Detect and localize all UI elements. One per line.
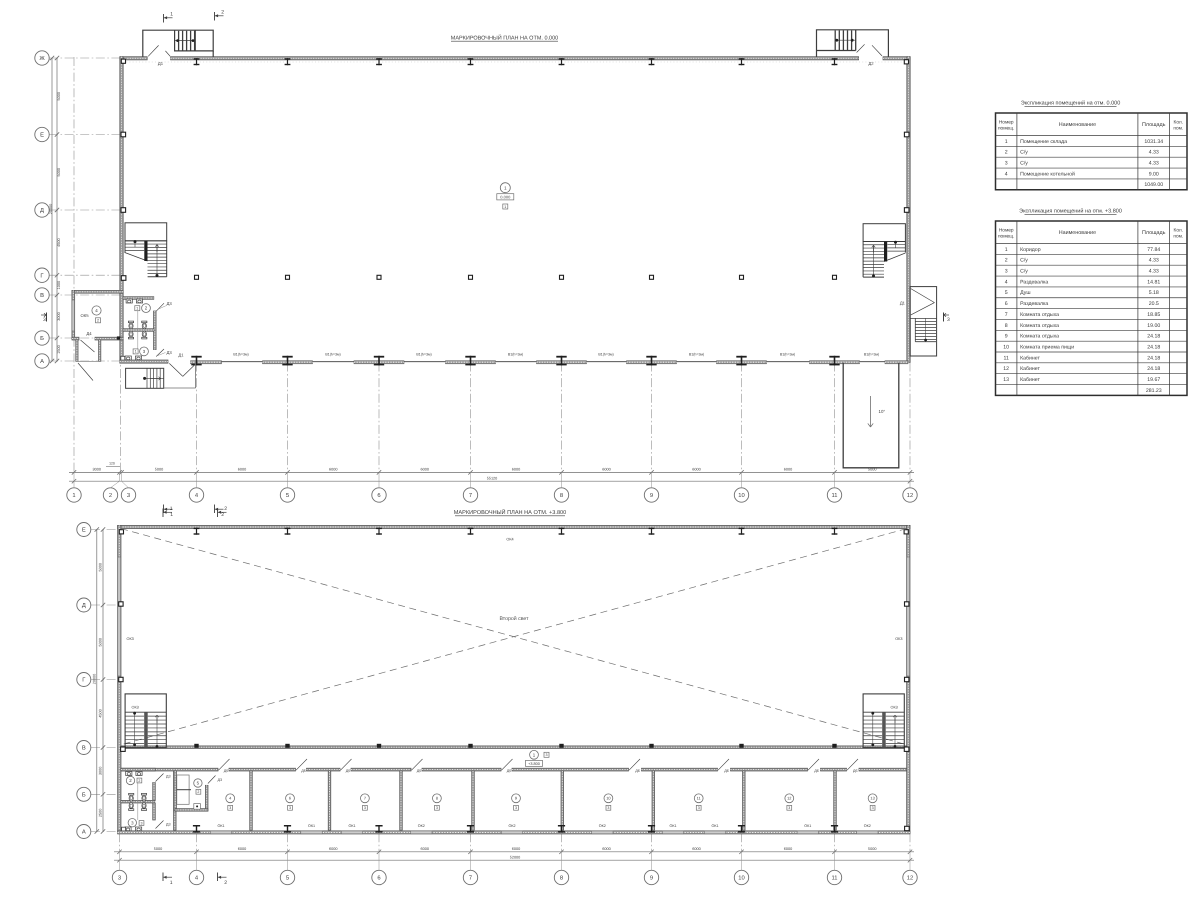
svg-text:Кабинет: Кабинет: [1020, 366, 1040, 372]
svg-text:10: 10: [738, 875, 744, 882]
svg-text:10: 10: [738, 492, 744, 499]
svg-text:9: 9: [515, 796, 517, 801]
svg-text:С/у: С/у: [1020, 161, 1028, 167]
svg-text:С/у: С/у: [1020, 269, 1028, 275]
svg-text:Д6: Д6: [635, 769, 640, 773]
svg-text:МАРКИРОВОЧНЫЙ ПЛАН НА ОТМ. +3.: МАРКИРОВОЧНЫЙ ПЛАН НА ОТМ. +3.800: [454, 508, 567, 516]
svg-text:9: 9: [650, 875, 653, 882]
svg-text:12: 12: [1003, 366, 1009, 372]
svg-text:6000: 6000: [238, 468, 246, 472]
svg-text:11: 11: [697, 796, 701, 801]
svg-text:Площадь: Площадь: [1142, 122, 1166, 128]
svg-text:3: 3: [364, 806, 366, 810]
svg-text:1: 1: [72, 493, 75, 499]
svg-text:1031.34: 1031.34: [1144, 139, 1163, 145]
svg-text:В: В: [40, 293, 44, 299]
svg-text:5000: 5000: [57, 92, 61, 100]
svg-text:1: 1: [170, 506, 173, 512]
svg-text:пом.: пом.: [1173, 126, 1183, 131]
svg-text:6000: 6000: [329, 847, 337, 851]
svg-text:В1(h=3м): В1(h=3м): [598, 352, 613, 356]
svg-text:7: 7: [364, 796, 366, 801]
svg-text:помещ.: помещ.: [998, 126, 1015, 131]
svg-text:В1(h=3м): В1(h=3м): [689, 352, 704, 356]
svg-text:6: 6: [1005, 301, 1008, 307]
svg-text:ОК5: ОК5: [81, 313, 90, 318]
svg-text:5000: 5000: [868, 468, 876, 472]
svg-text:19.67: 19.67: [1147, 377, 1160, 383]
svg-text:3000: 3000: [93, 468, 101, 472]
svg-text:2: 2: [221, 10, 224, 16]
svg-text:Наименование: Наименование: [1059, 122, 1096, 128]
svg-text:Б: Б: [82, 792, 86, 798]
svg-text:8: 8: [1005, 323, 1008, 329]
svg-text:3: 3: [118, 875, 121, 882]
svg-text:Д5: Д5: [224, 769, 229, 773]
svg-text:ОК3: ОК3: [895, 637, 902, 641]
svg-text:2: 2: [224, 880, 227, 886]
svg-text:24.18: 24.18: [1147, 344, 1160, 350]
svg-text:Д3: Д3: [167, 350, 173, 355]
svg-text:5000: 5000: [57, 168, 61, 176]
svg-text:ОК3: ОК3: [891, 705, 898, 709]
svg-text:5: 5: [286, 493, 289, 499]
svg-text:Наименование: Наименование: [1059, 230, 1096, 236]
svg-text:4.33: 4.33: [1149, 269, 1159, 275]
svg-text:1: 1: [1005, 247, 1008, 253]
svg-text:4.33: 4.33: [1149, 150, 1159, 156]
svg-text:4: 4: [1005, 279, 1008, 285]
svg-text:6000: 6000: [784, 847, 792, 851]
svg-text:6000: 6000: [784, 468, 792, 472]
svg-text:Помещение котельной: Помещение котельной: [1020, 171, 1075, 177]
svg-text:6000: 6000: [692, 847, 700, 851]
svg-text:Д6: Д6: [724, 769, 729, 773]
svg-text:5000: 5000: [99, 638, 103, 646]
svg-text:Д5: Д5: [507, 769, 512, 773]
svg-text:Д3: Д3: [166, 775, 171, 779]
svg-text:2500: 2500: [99, 809, 103, 817]
svg-text:С/у: С/у: [1020, 258, 1028, 264]
svg-text:ОК2: ОК2: [508, 824, 515, 828]
svg-text:В1(h=3м): В1(h=3м): [325, 352, 340, 356]
svg-text:4.33: 4.33: [1149, 161, 1159, 167]
svg-text:помещ.: помещ.: [998, 234, 1015, 239]
svg-text:6: 6: [377, 492, 380, 499]
svg-text:10°: 10°: [879, 409, 886, 414]
svg-text:20000: 20000: [49, 204, 53, 215]
svg-text:3: 3: [698, 806, 700, 810]
svg-text:3: 3: [1005, 269, 1008, 275]
svg-text:11: 11: [1004, 355, 1009, 361]
svg-text:В1(h=3м): В1(h=3м): [233, 352, 248, 356]
svg-text:Д3: Д3: [166, 823, 171, 827]
svg-text:Номер: Номер: [999, 119, 1014, 125]
svg-text:52000: 52000: [510, 855, 521, 859]
svg-text:В1(h=3м): В1(h=3м): [780, 352, 795, 356]
svg-text:4: 4: [1005, 171, 1008, 177]
svg-text:3: 3: [607, 806, 609, 810]
svg-text:ОК4: ОК4: [506, 538, 513, 542]
svg-text:В1(h=3м): В1(h=3м): [416, 352, 431, 356]
svg-text:6: 6: [377, 875, 380, 882]
svg-text:2: 2: [1005, 150, 1008, 156]
svg-text:Номер: Номер: [999, 227, 1014, 233]
svg-text:8: 8: [560, 492, 563, 499]
svg-text:Д2: Д2: [868, 61, 874, 66]
svg-text:2: 2: [224, 506, 227, 512]
svg-text:Кабинет: Кабинет: [1020, 355, 1040, 361]
svg-text:Комната отдыха: Комната отдыха: [1020, 323, 1059, 329]
svg-text:13: 13: [1003, 377, 1009, 383]
svg-text:4500: 4500: [99, 709, 103, 717]
svg-text:12: 12: [787, 796, 791, 801]
svg-text:Коридор: Коридор: [1020, 247, 1041, 253]
svg-text:Е: Е: [40, 133, 44, 139]
svg-text:3: 3: [515, 806, 517, 810]
svg-text:Кол.: Кол.: [1174, 119, 1184, 125]
svg-text:13: 13: [870, 796, 874, 801]
svg-text:Б: Б: [40, 336, 44, 342]
svg-text:10: 10: [1003, 344, 1009, 350]
svg-text:Д1: Д1: [178, 353, 184, 358]
svg-text:55120: 55120: [487, 476, 498, 480]
svg-text:19.00: 19.00: [1147, 323, 1160, 329]
svg-text:4.33: 4.33: [1149, 258, 1159, 264]
svg-text:С/у: С/у: [1020, 150, 1028, 156]
svg-text:Раздевалка: Раздевалка: [1020, 301, 1048, 307]
svg-text:ОК1: ОК1: [308, 824, 315, 828]
svg-text:9: 9: [1005, 334, 1008, 340]
svg-text:ОК2: ОК2: [599, 824, 606, 828]
svg-text:ОК1: ОК1: [348, 824, 355, 828]
svg-text:ОК3: ОК3: [132, 705, 139, 709]
svg-text:Душ: Душ: [1020, 290, 1030, 296]
svg-text:Д5: Д5: [346, 769, 351, 773]
svg-text:11: 11: [831, 493, 837, 499]
svg-text:5000: 5000: [868, 847, 876, 851]
svg-text:Е: Е: [82, 528, 86, 534]
svg-text:Кабинет: Кабинет: [1020, 377, 1040, 383]
svg-text:24.18: 24.18: [1147, 334, 1160, 340]
svg-text:3: 3: [872, 806, 874, 810]
svg-text:Д6: Д6: [814, 769, 819, 773]
svg-text:ОК2: ОК2: [418, 824, 425, 828]
svg-text:6000: 6000: [512, 468, 520, 472]
svg-text:МАРКИРОВОЧНЫЙ ПЛАН НА ОТМ. 0.0: МАРКИРОВОЧНЫЙ ПЛАН НА ОТМ. 0.000: [451, 35, 558, 42]
svg-text:В1(h=3м): В1(h=3м): [864, 352, 879, 356]
svg-text:Д3: Д3: [167, 301, 173, 306]
svg-text:5.18: 5.18: [1149, 290, 1159, 296]
svg-text:ОК2: ОК2: [864, 824, 871, 828]
svg-text:Кол.: Кол.: [1174, 227, 1184, 233]
svg-text:Д5: Д5: [301, 769, 306, 773]
svg-text:ОК1: ОК1: [804, 824, 811, 828]
svg-text:1: 1: [136, 306, 138, 310]
svg-text:6000: 6000: [602, 847, 610, 851]
svg-text:пом.: пом.: [1173, 234, 1183, 239]
svg-text:2: 2: [138, 779, 140, 783]
svg-text:6000: 6000: [329, 468, 337, 472]
svg-text:14.81: 14.81: [1147, 279, 1160, 285]
svg-text:1: 1: [170, 880, 173, 886]
svg-text:Д3: Д3: [218, 778, 223, 782]
svg-text:ОК1: ОК1: [669, 824, 676, 828]
svg-text:Ж: Ж: [39, 56, 45, 62]
svg-text:3: 3: [141, 821, 143, 825]
svg-text:Д: Д: [40, 208, 44, 214]
svg-text:9: 9: [650, 492, 653, 499]
svg-text:3: 3: [229, 806, 231, 810]
svg-text:3: 3: [947, 317, 950, 323]
svg-text:6000: 6000: [512, 847, 520, 851]
svg-text:А: А: [40, 359, 44, 365]
svg-text:Комната отдыха: Комната отдыха: [1020, 334, 1059, 340]
svg-text:7: 7: [469, 493, 472, 499]
svg-text:Д5: Д5: [417, 769, 422, 773]
svg-text:2: 2: [109, 492, 112, 499]
svg-text:3: 3: [1005, 161, 1008, 167]
svg-text:1: 1: [504, 205, 506, 209]
svg-text:Комната отдыха: Комната отдыха: [1020, 312, 1059, 318]
svg-text:12: 12: [907, 875, 913, 882]
svg-text:18.85: 18.85: [1147, 312, 1160, 318]
svg-text:Второй свет: Второй свет: [500, 616, 530, 622]
svg-text:5000: 5000: [99, 563, 103, 571]
svg-text:20000: 20000: [92, 674, 96, 685]
svg-text:1049.00: 1049.00: [1144, 182, 1163, 188]
svg-text:5: 5: [286, 876, 289, 882]
svg-text:0.000: 0.000: [500, 195, 511, 200]
svg-text:2: 2: [221, 512, 224, 518]
svg-text:ОК1: ОК1: [217, 824, 224, 828]
svg-text:А: А: [82, 830, 86, 836]
svg-text:20.5: 20.5: [1149, 301, 1159, 307]
svg-text:Раздевалка: Раздевалка: [1020, 279, 1048, 285]
svg-text:8: 8: [436, 796, 438, 801]
svg-text:7: 7: [1005, 312, 1008, 318]
svg-text:6000: 6000: [602, 468, 610, 472]
svg-text:3: 3: [788, 806, 790, 810]
svg-text:4500: 4500: [57, 238, 61, 246]
svg-text:ОК3: ОК3: [127, 637, 134, 641]
svg-text:Д6: Д6: [853, 769, 858, 773]
svg-text:1: 1: [170, 512, 173, 518]
svg-text:6000: 6000: [692, 468, 700, 472]
svg-text:Площадь: Площадь: [1142, 230, 1166, 236]
svg-text:2: 2: [197, 790, 199, 794]
svg-text:1: 1: [1005, 139, 1008, 145]
svg-text:1500: 1500: [57, 345, 61, 353]
svg-text:6000: 6000: [421, 468, 429, 472]
svg-text:+3.800: +3.800: [528, 762, 540, 766]
svg-text:3: 3: [127, 492, 130, 499]
svg-text:2: 2: [97, 319, 99, 323]
svg-text:24.18: 24.18: [1147, 366, 1160, 372]
svg-text:8: 8: [560, 875, 563, 882]
svg-text:6: 6: [289, 796, 291, 801]
svg-text:5000: 5000: [154, 847, 162, 851]
svg-text:281.23: 281.23: [1146, 388, 1162, 394]
svg-text:9.00: 9.00: [1149, 171, 1159, 177]
svg-text:1: 1: [135, 350, 137, 354]
svg-text:Экспликация помещений на отм.: Экспликация помещений на отм. +3.800: [1019, 208, 1122, 215]
svg-text:3: 3: [436, 806, 438, 810]
svg-text:120: 120: [109, 461, 115, 465]
svg-text:Д4: Д4: [86, 331, 92, 336]
svg-text:3: 3: [546, 753, 548, 757]
svg-text:ОК1: ОК1: [711, 824, 718, 828]
svg-text:5000: 5000: [155, 468, 163, 472]
svg-text:12: 12: [907, 492, 913, 499]
svg-text:В1(h=3м): В1(h=3м): [508, 352, 523, 356]
svg-text:24.18: 24.18: [1147, 355, 1160, 361]
svg-text:7: 7: [469, 876, 472, 882]
svg-text:В: В: [82, 746, 86, 752]
svg-text:Экспликация помещений на отм.: Экспликация помещений на отм. 0.000: [1021, 100, 1121, 107]
svg-text:3: 3: [43, 317, 46, 323]
svg-text:2: 2: [1005, 258, 1008, 264]
svg-text:Д1: Д1: [158, 61, 164, 66]
svg-text:Д: Д: [82, 603, 86, 609]
svg-text:6000: 6000: [421, 847, 429, 851]
svg-text:77.84: 77.84: [1147, 247, 1160, 253]
svg-text:1000: 1000: [57, 281, 61, 289]
svg-text:Комната приема пищи: Комната приема пищи: [1020, 344, 1074, 350]
svg-text:3000: 3000: [99, 767, 103, 775]
svg-text:Помещение склада: Помещение склада: [1020, 139, 1067, 145]
svg-text:Д1: Д1: [900, 301, 906, 306]
svg-text:5: 5: [1005, 290, 1008, 296]
svg-text:3: 3: [289, 806, 291, 810]
svg-text:3000: 3000: [57, 312, 61, 320]
svg-text:11: 11: [831, 876, 837, 882]
svg-text:6000: 6000: [238, 847, 246, 851]
svg-text:1: 1: [170, 12, 173, 18]
